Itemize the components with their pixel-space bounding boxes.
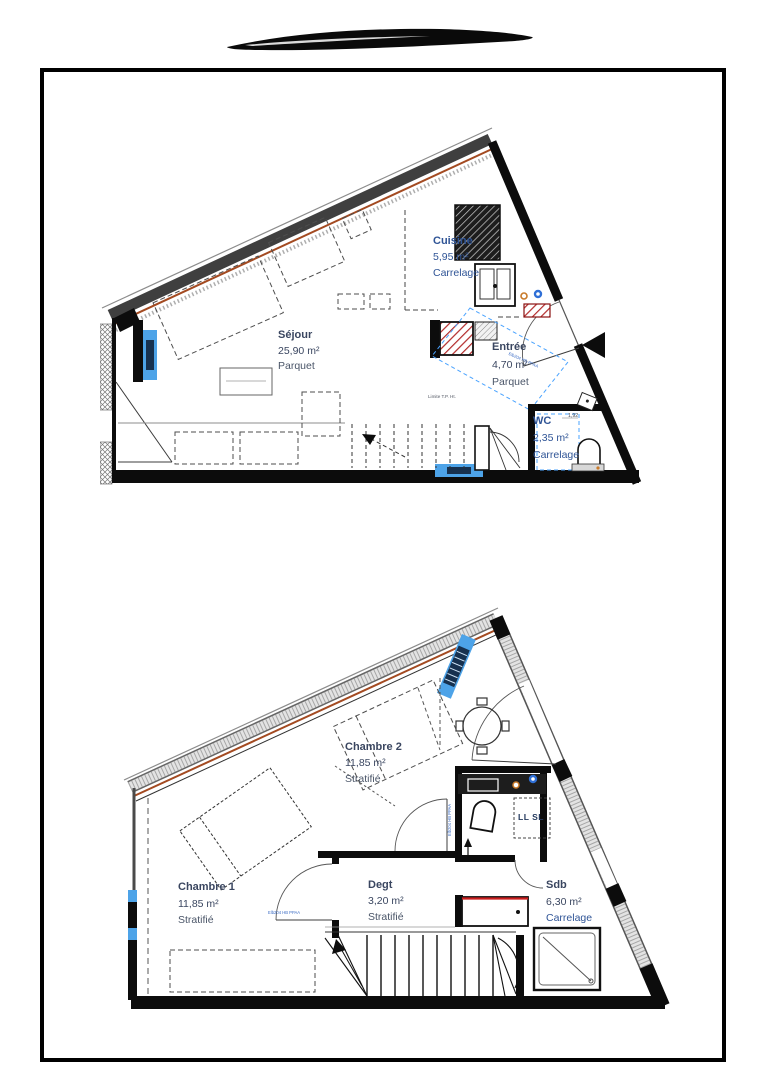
- bottom-exterior-wall: [111, 470, 639, 483]
- table: [220, 368, 272, 395]
- armchair: [302, 392, 340, 436]
- room-label-wc: WC 2,35 m² Carrelage: [533, 415, 579, 461]
- hot-water-point: [513, 782, 519, 788]
- room-floor: Parquet: [278, 360, 315, 372]
- cooktop: [521, 290, 542, 299]
- room-area: 11,85 m²: [178, 898, 219, 910]
- left-window: [143, 330, 157, 380]
- oven-plq: [524, 304, 550, 317]
- room-floor: Parquet: [492, 376, 529, 388]
- winder-fan: [490, 428, 520, 470]
- shower: [534, 928, 600, 990]
- room-name: Cuisine: [433, 235, 473, 247]
- winder-fan-right: [493, 935, 519, 996]
- toilet: [470, 799, 497, 831]
- stairs-upper: [352, 424, 520, 470]
- kitchen-sink: [475, 264, 515, 306]
- wc-dimension: 1,92: [568, 413, 578, 419]
- balcony-door-swing: [472, 686, 524, 760]
- balcony-door-leaf: [472, 760, 556, 764]
- room-area: 2,35 m²: [533, 432, 569, 444]
- room-name: Sdb: [546, 879, 567, 891]
- sloped-exterior-wall: [102, 128, 492, 332]
- room-name: Chambre 2: [345, 741, 402, 753]
- sdb-door-swing: [515, 860, 543, 888]
- floor-plan-page: Elb204 HB PPAA: [0, 0, 763, 1080]
- lower-floor-plan: Elb204 HB PPAA Elb204 HB PPAA LL SL: [110, 598, 675, 1023]
- up-arrow-icon: [464, 838, 472, 856]
- wardrobe-dashed: [170, 950, 315, 992]
- wc-laundry-block: LL SL: [458, 774, 550, 856]
- room-label-degt: Degt 3,20 m² Stratifié: [368, 879, 404, 923]
- left-exterior-wall: [100, 318, 172, 484]
- party-wall-hatch: [100, 442, 112, 484]
- bottom-exterior-wall: [131, 996, 665, 1009]
- closet-dash: [335, 766, 395, 806]
- room-area: 3,20 m²: [368, 895, 404, 907]
- room-floor: Carrelage: [433, 267, 479, 279]
- ink-stroke-shape: [227, 29, 533, 50]
- washer-dryer-label: LL SL: [518, 812, 544, 822]
- sejour-furniture: [150, 202, 390, 464]
- round-table: [456, 698, 509, 754]
- party-wall-hatch: [100, 324, 112, 410]
- stairs-lower: [325, 927, 519, 996]
- sofa: [240, 432, 298, 464]
- stair-stringer: [475, 426, 489, 470]
- room-floor: Stratifié: [368, 911, 404, 923]
- sloped-exterior-wall: [124, 608, 498, 801]
- appliance-slot: [440, 322, 473, 355]
- insulation-line: [134, 629, 498, 796]
- dashed-guide: [418, 688, 440, 750]
- room-name: Degt: [368, 879, 393, 891]
- room-area: 11,85 m²: [345, 757, 386, 769]
- room-area: 5,95 m²: [433, 251, 469, 263]
- room-label-sejour: Séjour 25,90 m² Parquet: [278, 329, 320, 372]
- left-window: [128, 890, 137, 902]
- room-area: 6,30 m²: [546, 896, 582, 908]
- chambre2-door-swing: [395, 799, 447, 851]
- room-area: 4,70 m²: [492, 359, 528, 371]
- sdb-window: [596, 850, 612, 886]
- room-floor: Stratifié: [345, 773, 381, 785]
- stair-direction-arrow: [332, 939, 362, 986]
- winder-fan-left: [325, 935, 367, 996]
- room-name: Séjour: [278, 329, 313, 341]
- ink-stroke: [0, 0, 763, 70]
- room-floor: Carrelage: [546, 912, 592, 924]
- upper-floor-plan: Elb204 HB PPAA: [100, 112, 650, 497]
- room-label-sdb: Sdb 6,30 m² Carrelage: [546, 879, 592, 924]
- bed-chambre1: [180, 768, 311, 890]
- room-label-chambre1: Chambre 1 11,85 m² Stratifié: [178, 881, 235, 926]
- room-label-entree: Entrée 4,70 m² Parquet: [492, 341, 529, 388]
- room-name: Entrée: [492, 341, 526, 353]
- stair-direction-arrow: [362, 434, 405, 457]
- sofa: [175, 432, 233, 464]
- door-label: Elb204 HB PPAA: [268, 910, 300, 915]
- entrance-door-opening: [559, 300, 580, 349]
- limite-label: Limite T.P. Ht.: [428, 394, 456, 399]
- room-floor: Carrelage: [533, 449, 579, 461]
- sdb-fixtures: [455, 895, 600, 990]
- room-label-chambre2: Chambre 2 11,85 m² Stratifié: [345, 741, 402, 785]
- dishwasher: [475, 322, 497, 340]
- door-label-vertical: Elb204 HB PPAA: [447, 804, 452, 836]
- left-window: [128, 928, 137, 940]
- balcony-door-leaf: [116, 382, 172, 462]
- balcony-door-opening: [524, 682, 558, 762]
- left-exterior-wall: [128, 788, 137, 1000]
- room-name: WC: [533, 415, 551, 427]
- room-floor: Stratifié: [178, 914, 214, 926]
- room-name: Chambre 1: [178, 881, 235, 893]
- room-area: 25,90 m²: [278, 345, 320, 357]
